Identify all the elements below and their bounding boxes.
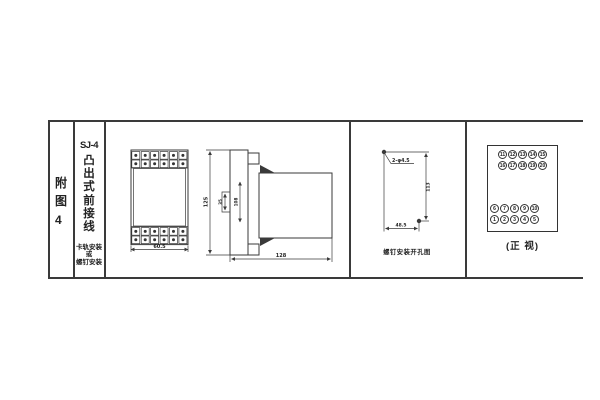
terminal-8: 8 [510, 204, 519, 213]
side-view-drawing: 125 35 108 128 [204, 150, 333, 262]
terminal-11: 11 [498, 150, 507, 159]
mounting-note: 卡轨安装或螺钉安装 [76, 244, 102, 267]
front-terminal-strip-bottom [132, 228, 187, 244]
terminal-row-1-5: 12345 [490, 215, 539, 224]
front-width-dim: 60.5 [153, 244, 166, 250]
terminal-screw-dot [163, 154, 166, 157]
terminal-13: 13 [518, 150, 527, 159]
terminal-screw-dot [153, 230, 156, 233]
hole-horizontal-dim: 48.5 [395, 223, 406, 229]
side-inner-dim: 108 [234, 198, 239, 207]
text-line: 螺钉安装 [76, 259, 102, 267]
model-label: SJ-4 [80, 140, 98, 151]
terminal-4: 4 [520, 215, 529, 224]
terminal-screw-dot [172, 238, 175, 241]
text-line: 式 [83, 182, 95, 194]
terminal-screw-dot [181, 154, 184, 157]
appendix-index-column: 附图4 [49, 170, 73, 232]
terminal-screw-dot [163, 230, 166, 233]
terminal-screw-dot [134, 154, 137, 157]
rail-slot-dim: 35 [218, 199, 223, 205]
terminal-16: 16 [498, 161, 507, 170]
holes-diameter-label: 2-φ4.5 [392, 158, 410, 164]
terminal-screw-dot [153, 238, 156, 241]
mount-hole-top [382, 150, 386, 154]
terminal-screw-dot [134, 238, 137, 241]
terminal-screw-dot [163, 162, 166, 165]
terminal-screw-dot [181, 162, 184, 165]
text-line: 图 [55, 195, 67, 207]
text-line: 前 [83, 196, 95, 208]
terminal-7: 7 [500, 204, 509, 213]
front-terminal-strip-top [132, 152, 187, 168]
side-height-dim: 125 [204, 196, 210, 207]
title-column: SJ-4 凸出式前接线 卡轨安装或螺钉安装 [74, 140, 104, 267]
terminal-screw-dot [144, 238, 147, 241]
terminal-19: 19 [528, 161, 537, 170]
text-line: 凸 [83, 156, 95, 168]
divider-drilling-terminal [465, 120, 467, 279]
terminal-row-6-10: 678910 [490, 204, 539, 213]
appendix-label: 附图4 [55, 170, 67, 232]
mount-hole-bottom [417, 219, 421, 223]
terminal-screw-dot [181, 230, 184, 233]
terminal-row-16-20: 1617181920 [498, 161, 547, 170]
terminal-14: 14 [528, 150, 537, 159]
terminal-2: 2 [500, 215, 509, 224]
terminal-screw-dot [163, 238, 166, 241]
terminal-row-11-15: 1112131415 [498, 150, 547, 159]
text-line: 接 [83, 209, 95, 221]
terminal-10: 10 [530, 204, 539, 213]
terminal-screw-dot [181, 238, 184, 241]
figure-page: 附图4 SJ-4 凸出式前接线 卡轨安装或螺钉安装 60.5 [0, 0, 600, 400]
terminal-1: 1 [490, 215, 499, 224]
terminal-9: 9 [520, 204, 529, 213]
outline-drawing: 60.5 125 35 108 128 [104, 120, 349, 277]
terminal-15: 15 [538, 150, 547, 159]
terminal-12: 12 [508, 150, 517, 159]
drilling-diagram-drawing: 2-φ4.5 113 48.5 螺钉安装开孔图 [349, 120, 465, 277]
drilling-diagram-caption: 螺钉安装开孔图 [383, 247, 431, 256]
text-line: 4 [55, 214, 67, 226]
front-view-drawing: 60.5 [131, 150, 188, 252]
terminal-screw-dot [172, 154, 175, 157]
terminal-screw-dot [172, 230, 175, 233]
text-line: 附 [55, 177, 67, 189]
terminal-screw-dot [134, 162, 137, 165]
table-bottom-border [48, 277, 583, 279]
text-line: 出 [83, 169, 95, 181]
text-line: 或 [76, 251, 102, 259]
wiring-style-title: 凸出式前接线 [83, 154, 95, 236]
terminal-screw-dot [144, 154, 147, 157]
terminal-5: 5 [530, 215, 539, 224]
terminal-6: 6 [490, 204, 499, 213]
terminal-screw-dot [153, 162, 156, 165]
terminal-screw-dot [144, 162, 147, 165]
terminal-screw-dot [153, 154, 156, 157]
terminal-screw-dot [144, 230, 147, 233]
side-depth-dim: 128 [276, 253, 287, 259]
terminal-18: 18 [518, 161, 527, 170]
terminal-3: 3 [510, 215, 519, 224]
text-line: 线 [83, 222, 95, 234]
terminal-20: 20 [538, 161, 547, 170]
terminal-screw-dot [134, 230, 137, 233]
terminal-view-caption: (正 视) [487, 238, 558, 252]
terminal-screw-dot [172, 162, 175, 165]
hole-vertical-dim: 113 [426, 182, 432, 191]
terminal-17: 17 [508, 161, 517, 170]
